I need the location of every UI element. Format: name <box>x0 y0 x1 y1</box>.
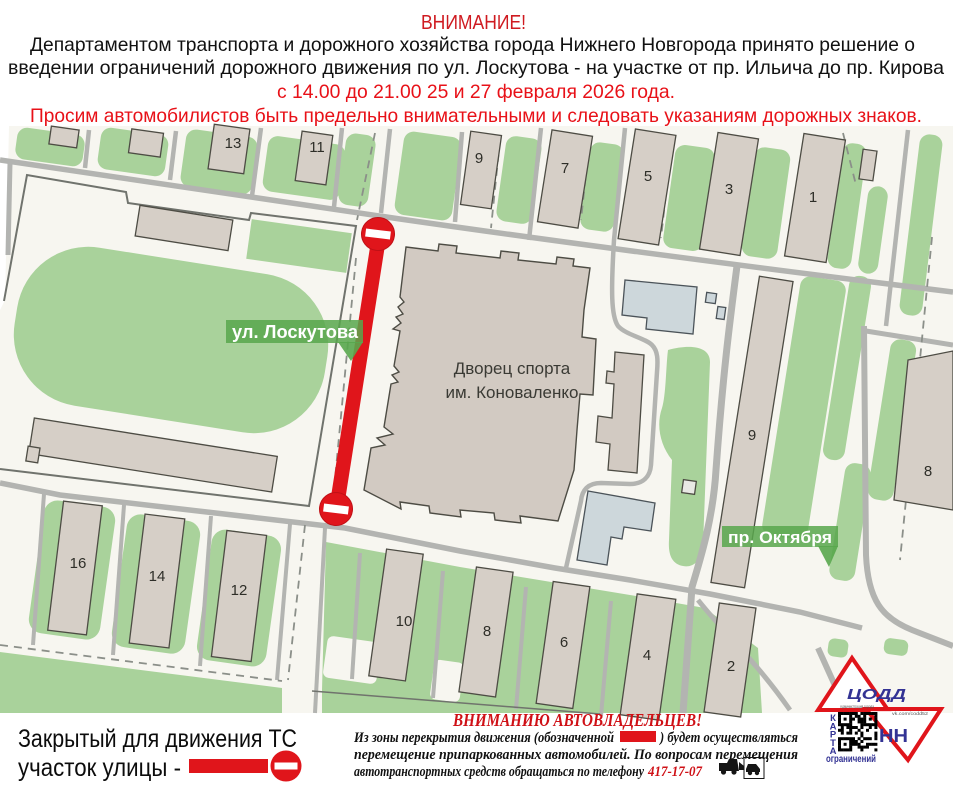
svg-text:10: 10 <box>396 613 413 630</box>
svg-text:6: 6 <box>560 634 568 651</box>
svg-text:ул. Лоскутова: ул. Лоскутова <box>232 322 359 342</box>
svg-text:417-17-07: 417-17-07 <box>647 764 702 780</box>
svg-text:им. Коноваленко: им. Коноваленко <box>446 383 579 402</box>
svg-text:1: 1 <box>809 189 817 206</box>
svg-text:8: 8 <box>483 623 491 640</box>
svg-text:Департаментом транспорта и дор: Департаментом транспорта и дорожного хоз… <box>30 34 915 56</box>
svg-text:пр. Октября: пр. Октября <box>728 528 832 547</box>
svg-text:16: 16 <box>70 555 87 572</box>
svg-text:9: 9 <box>748 427 756 444</box>
svg-text:7: 7 <box>561 160 569 177</box>
svg-text:vk.com/codd52: vk.com/codd52 <box>892 711 929 716</box>
svg-text:4: 4 <box>643 647 651 664</box>
svg-text:9: 9 <box>475 150 483 167</box>
svg-text:3: 3 <box>725 181 733 198</box>
svg-text:13: 13 <box>225 135 242 152</box>
svg-text:ВНИМАНИЕ!: ВНИМАНИЕ! <box>421 12 526 34</box>
svg-text:НН: НН <box>879 726 908 746</box>
svg-text:Просим автомобилистов быть пре: Просим автомобилистов быть предельно вни… <box>30 105 922 127</box>
svg-text:Закрытый для движения ТС: Закрытый для движения ТС <box>18 725 297 753</box>
svg-text:с 14.00 до 21.00 25 и 27 февра: с 14.00 до 21.00 25 и 27 февраля 2026 го… <box>277 81 675 103</box>
svg-text:автотранспортных средств обращ: автотранспортных средств обращаться по т… <box>354 764 644 780</box>
svg-text:ВНИМАНИЮ АВТОВЛАДЕЛЬЦЕВ!: ВНИМАНИЮ АВТОВЛАДЕЛЬЦЕВ! <box>452 710 702 730</box>
svg-text:14: 14 <box>149 568 166 585</box>
svg-text:5: 5 <box>644 168 652 185</box>
svg-text:Администрация города: Администрация города <box>840 704 874 709</box>
svg-text:участок улицы -: участок улицы - <box>18 754 181 782</box>
svg-text:введении ограничений дорожного: введении ограничений дорожного движения … <box>8 57 944 79</box>
svg-text:8: 8 <box>924 463 932 480</box>
svg-text:) будет осуществляться: ) будет осуществляться <box>658 730 798 746</box>
svg-text:12: 12 <box>231 582 248 599</box>
svg-text:ЦОДД: ЦОДД <box>847 686 906 703</box>
svg-text:ограничений: ограничений <box>826 754 876 765</box>
svg-text:2: 2 <box>727 658 735 675</box>
svg-text:11: 11 <box>309 139 325 156</box>
svg-text:Из зоны перекрытия движения (о: Из зоны перекрытия движения (обозначенно… <box>353 730 614 746</box>
svg-text:Дворец спорта: Дворец спорта <box>454 359 571 378</box>
